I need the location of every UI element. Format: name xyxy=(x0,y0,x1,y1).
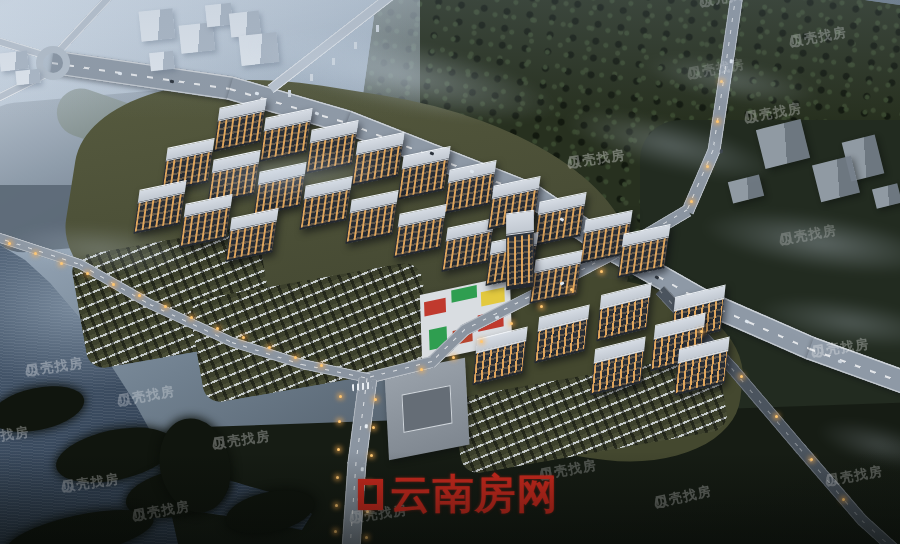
streetlight xyxy=(540,305,543,308)
streetlight xyxy=(320,364,323,367)
streetlight xyxy=(716,120,719,123)
streetlight xyxy=(138,294,141,297)
city-block-building xyxy=(15,69,40,85)
streetlight xyxy=(374,398,377,401)
streetlight xyxy=(112,283,115,286)
vehicle xyxy=(118,72,122,75)
streetlight xyxy=(372,426,375,429)
brand-text: 云南房网 xyxy=(390,474,558,515)
streetlight xyxy=(690,200,693,203)
apartment-tower xyxy=(506,210,534,291)
streetlight xyxy=(700,330,703,333)
streetlight xyxy=(242,336,245,339)
streetlight xyxy=(164,305,167,308)
city-block-building xyxy=(139,8,176,41)
streetlight xyxy=(570,288,573,291)
streetlight xyxy=(600,270,603,273)
site-brand-wordmark: 云南房网 xyxy=(358,474,558,515)
streetlight xyxy=(334,530,337,533)
watermark-text: 贝壳找房 xyxy=(116,382,176,410)
streetlight xyxy=(370,454,373,457)
viaduct-pier xyxy=(288,90,291,97)
vehicle xyxy=(361,467,364,471)
streetlight xyxy=(216,327,219,330)
streetlight xyxy=(480,340,483,343)
streetlight xyxy=(336,476,339,479)
aerial-night-render: 贝壳找房贝壳找房贝壳找房贝壳找房贝壳找房贝壳找房贝壳找房贝壳找房贝壳找房贝壳找房… xyxy=(0,0,900,544)
streetlight xyxy=(420,368,423,371)
streetlight xyxy=(842,498,845,501)
city-block-building xyxy=(149,51,175,71)
kindergarten-roof-tile xyxy=(424,298,446,317)
streetlight xyxy=(338,420,341,423)
streetlight xyxy=(775,415,778,418)
streetlight xyxy=(268,346,271,349)
streetlight xyxy=(337,448,340,451)
streetlight xyxy=(339,395,342,398)
streetlight xyxy=(510,322,513,325)
viaduct-pier xyxy=(376,25,379,32)
streetlight xyxy=(335,504,338,507)
vehicle xyxy=(170,80,174,83)
city-block-building xyxy=(0,51,29,72)
streetlight xyxy=(190,316,193,319)
plaza-building xyxy=(401,385,452,433)
streetlight xyxy=(810,458,813,461)
roundabout xyxy=(36,46,70,80)
streetlight xyxy=(294,356,297,359)
red-square-frame-icon xyxy=(358,479,383,510)
vehicle xyxy=(365,424,368,428)
streetlight xyxy=(365,536,368,539)
kindergarten-roof-tile xyxy=(451,285,477,303)
streetlight xyxy=(452,356,455,359)
streetlight xyxy=(740,375,743,378)
